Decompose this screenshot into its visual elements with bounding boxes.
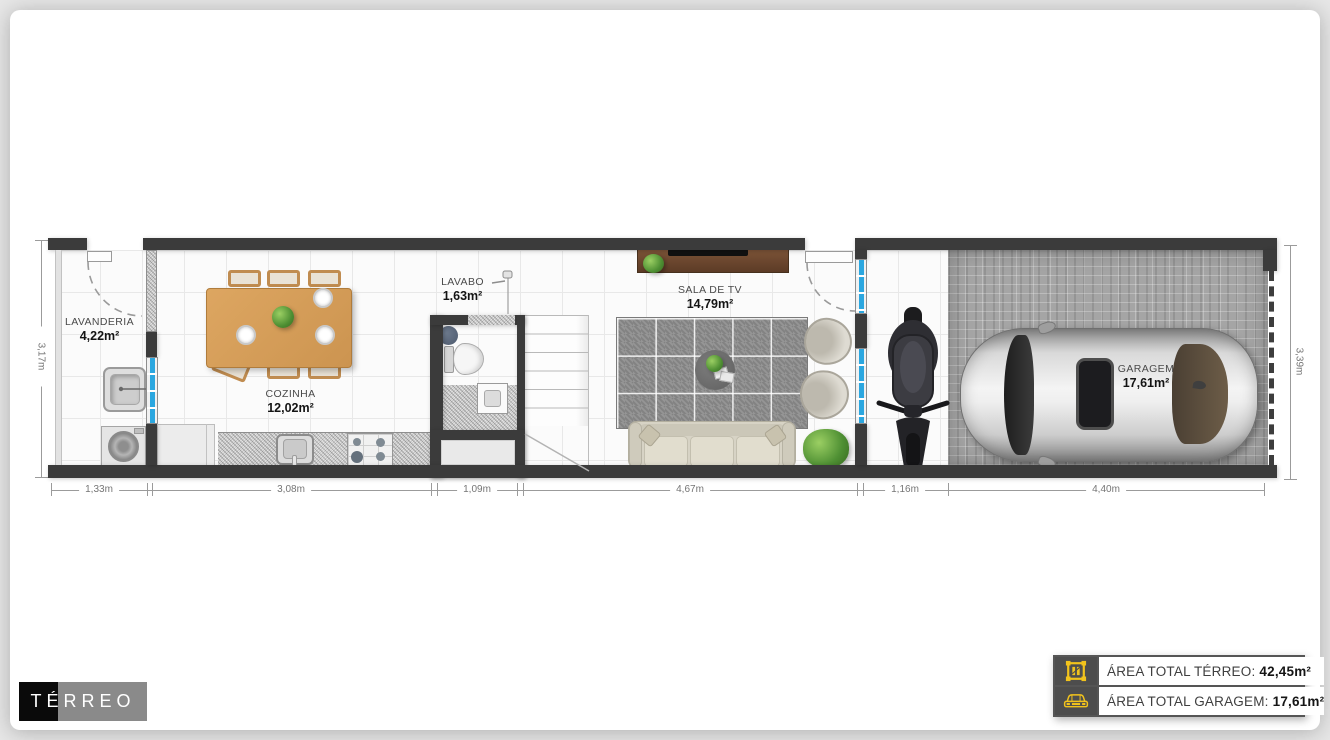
wall-top-garage	[855, 238, 1277, 250]
dim-tick	[1264, 483, 1265, 496]
sofa-armrest	[782, 422, 795, 468]
burner	[351, 451, 363, 463]
dim-line-right	[1290, 245, 1291, 480]
wall-w4-mid	[855, 314, 867, 348]
dim-tick	[863, 483, 864, 496]
sala-rug-plant	[706, 355, 723, 372]
label-garagem: GARAGEM 17,61m²	[1100, 360, 1192, 394]
dim-tick	[948, 483, 949, 496]
room-name: LAVANDERIA	[65, 316, 134, 329]
dim-tick	[152, 483, 153, 496]
table-centerpiece-plant	[272, 306, 294, 328]
dining-chair	[228, 270, 261, 287]
room-name: GARAGEM	[1118, 363, 1174, 376]
dim-tick	[523, 483, 524, 496]
dim-label: 1,09m	[457, 484, 497, 495]
dim-tick	[431, 483, 432, 496]
place-setting	[236, 325, 256, 345]
kitchen-counter	[218, 432, 430, 467]
title-block: TÉRREO	[19, 682, 147, 721]
legend-label: ÁREA TOTAL TÉRREO:	[1107, 664, 1255, 679]
burner	[376, 452, 385, 461]
dim-label: 3,08m	[271, 484, 311, 495]
dim-tick	[147, 483, 148, 496]
room-name: COZINHA	[265, 388, 315, 401]
sofa-armrest	[629, 422, 642, 468]
dim-label: 4,40m	[1086, 484, 1126, 495]
washer-panel	[134, 428, 144, 434]
room-name: SALA DE TV	[678, 284, 742, 297]
stairs-side-line	[588, 315, 589, 471]
left-boundary	[55, 250, 62, 465]
dim-tick	[1284, 479, 1297, 480]
label-cozinha: COZINHA 12,02m²	[233, 386, 348, 418]
laundry-sink-basin	[110, 374, 140, 405]
car-rear-window	[1172, 344, 1228, 444]
fridge-door-line	[206, 424, 207, 467]
window-w4-lower	[855, 348, 867, 424]
area-legend: ÁREA TOTAL TÉRREO: 42,45m² ÁREA TOTAL GA…	[1053, 655, 1305, 717]
dim-tick	[517, 483, 518, 496]
lavabo-sink-basin	[484, 390, 501, 407]
legend-value: 17,61m²	[1273, 694, 1325, 709]
wall-w4-bottom	[855, 424, 867, 465]
lavabo-door-panel	[441, 440, 515, 465]
sofa	[628, 421, 796, 469]
room-area: 14,79m²	[687, 297, 734, 313]
room-area: 1,63m²	[443, 289, 483, 305]
tv	[668, 249, 748, 256]
room-area: 12,02m²	[267, 401, 314, 417]
dining-chair	[308, 270, 341, 287]
dim-label: 1,16m	[885, 484, 925, 495]
dim-label-right: 3,39m	[1294, 332, 1305, 392]
burner	[353, 438, 361, 446]
dim-label: 4,67m	[670, 484, 710, 495]
garage-door-stub-top	[1263, 250, 1277, 271]
dim-tick	[35, 477, 48, 478]
dim-line-bottom	[51, 490, 1265, 491]
sala-plant	[803, 429, 849, 468]
car	[960, 328, 1258, 462]
dim-tick	[51, 483, 52, 496]
legend-label: ÁREA TOTAL GARAGEM:	[1107, 694, 1269, 709]
wall-top-main	[143, 238, 805, 250]
console-plant	[643, 254, 664, 273]
legend-text-garagem: ÁREA TOTAL GARAGEM: 17,61m²	[1099, 687, 1324, 715]
dim-tick	[1284, 245, 1297, 246]
window-w1	[146, 357, 158, 424]
dim-label-left: 3,17m	[36, 327, 47, 387]
window-w4-upper	[855, 259, 867, 314]
sofa-cushion	[690, 436, 734, 467]
wall-w1-granite	[146, 250, 157, 332]
label-lavanderia: LAVANDERIA 4,22m²	[52, 313, 147, 347]
wall-top-left	[48, 238, 87, 250]
place-setting	[313, 288, 333, 308]
garage-door-dashed	[1269, 271, 1274, 465]
car-windshield	[1004, 335, 1034, 455]
dim-tick	[857, 483, 858, 496]
staircase	[525, 315, 589, 426]
wall-w1-upper	[146, 332, 157, 357]
legend-row-garagem: ÁREA TOTAL GARAGEM: 17,61m²	[1055, 687, 1324, 715]
lavanderia-door-leaf	[87, 251, 112, 262]
label-lavabo: LAVABO 1,63m²	[420, 274, 505, 306]
wall-w1-lower	[146, 424, 157, 465]
dining-chair	[267, 270, 300, 287]
lavabo-top-granite	[468, 315, 515, 325]
floor-title: TÉRREO	[19, 682, 147, 721]
sofa-back	[639, 424, 785, 436]
legend-row-terreo: ÁREA TOTAL TÉRREO: 42,45m²	[1055, 657, 1324, 685]
washer-drum	[108, 431, 139, 462]
wall-w4-top	[855, 250, 867, 259]
floorplan-icon	[1055, 657, 1097, 685]
room-area: 4,22m²	[80, 329, 120, 345]
dim-tick	[437, 483, 438, 496]
room-area: 17,61m²	[1123, 376, 1170, 392]
sala-door-leaf	[805, 251, 853, 263]
legend-value: 42,45m²	[1259, 664, 1311, 679]
label-sala: SALA DE TV 14,79m²	[650, 281, 770, 315]
place-setting	[315, 325, 335, 345]
room-name: LAVABO	[441, 276, 484, 289]
dim-tick	[35, 240, 48, 241]
legend-text-terreo: ÁREA TOTAL TÉRREO: 42,45m²	[1099, 657, 1324, 685]
wall-bottom	[48, 465, 1277, 478]
floorplan-page: { "title_block": { "title": "TÉRREO" }, …	[0, 0, 1330, 740]
car-icon	[1055, 687, 1097, 715]
dim-label: 1,33m	[79, 484, 119, 495]
burner	[376, 438, 385, 447]
